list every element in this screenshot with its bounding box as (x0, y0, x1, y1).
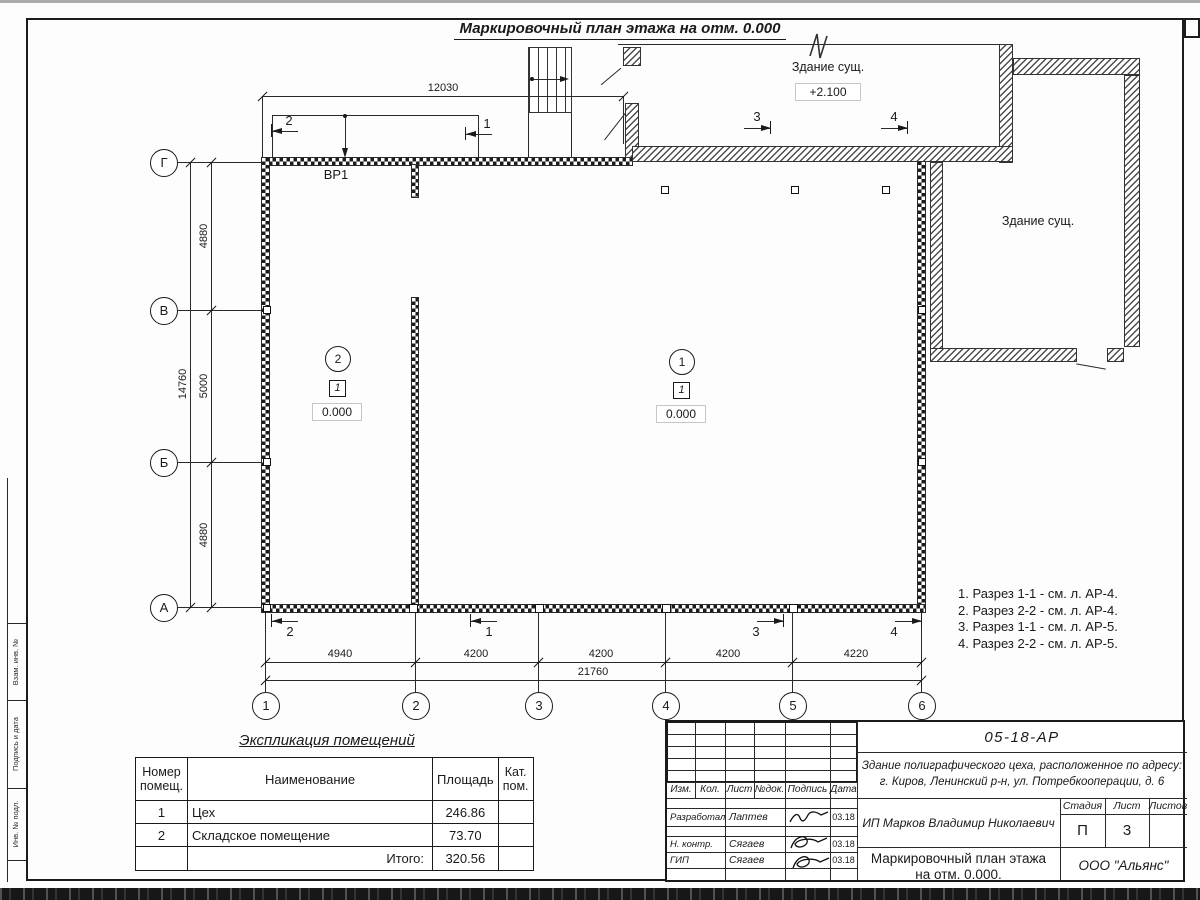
side-stamp-label: Инв. № подл. (11, 786, 23, 862)
column-mark (535, 604, 544, 613)
dim-line-top (262, 96, 623, 97)
column-mark (791, 186, 799, 194)
side-stamp-line (7, 478, 8, 882)
existing-wall (930, 348, 1077, 362)
section-mark-2b-label: 2 (280, 624, 300, 639)
dim-ext-line (623, 96, 624, 144)
expl-header-number: Номер помещ. (136, 758, 188, 801)
dim-ext-line (262, 96, 263, 157)
column-mark (409, 604, 418, 613)
axis-bubble-letter: Б (150, 449, 178, 477)
section-mark-1b-arrow (471, 618, 481, 624)
tb-name: Лаптев (729, 811, 768, 823)
tb-doc-code: 05-18-АР (857, 729, 1187, 746)
expl-row: 2 Складское помещение 73.70 (136, 824, 534, 847)
section-mark-2b-tick (271, 614, 272, 627)
section-mark-4b-label: 4 (884, 624, 904, 639)
section-mark-3-tick (770, 121, 771, 134)
section-mark-3b-tick (783, 614, 784, 627)
section-mark-2-arrow (272, 128, 282, 134)
signature (785, 830, 833, 878)
tb-stage-value: П (1060, 822, 1105, 839)
room-type-mark: 1 (673, 382, 690, 399)
section-notes: 1. Разрез 1-1 - см. л. АР-4. 2. Разрез 2… (958, 586, 1193, 652)
drawing-sheet: Взам. инв. № Подпись и дата Инв. № подл.… (0, 0, 1200, 900)
column-mark (882, 186, 890, 194)
axis-bubble-letter: Г (150, 149, 178, 177)
tb-date: 03.18 (830, 839, 857, 849)
tb-col-list: Лист (725, 784, 754, 795)
column-mark (661, 186, 669, 194)
tb-date: 03.18 (830, 812, 857, 822)
room-number-bubble: 1 (669, 349, 695, 375)
page-title: Маркировочный план этажа на отм. 0.000 (420, 20, 820, 37)
dim-value-bottom: 4200 (688, 648, 768, 660)
column-mark (263, 604, 271, 612)
expl-cell-cat (498, 824, 533, 847)
expl-header-cat: Кат. пом. (498, 758, 533, 801)
expl-total-row: Итого: 320.56 (136, 847, 534, 871)
dim-value-left: 4880 (198, 505, 212, 565)
expl-cell-empty (136, 847, 188, 871)
column-mark (918, 306, 926, 314)
dim-value-top: 12030 (405, 82, 481, 94)
title-block: Изм. Кол. Лист №док. Подпись Дата Разраб… (665, 720, 1185, 882)
side-stamp-label: Подпись и дата (11, 706, 23, 782)
expl-cell-name: Цех (188, 801, 433, 824)
existing-shared-wall (632, 146, 1013, 162)
side-stamp-divider (7, 700, 26, 701)
axis-bubble-letter: А (150, 594, 178, 622)
tb-col-izm: Изм. (667, 784, 695, 795)
dim-value-left-total: 14760 (177, 354, 191, 414)
expl-cell-num: 1 (136, 801, 188, 824)
room-number-bubble: 2 (325, 346, 351, 372)
axis-bubble-letter: В (150, 297, 178, 325)
annex-arrow-dot (343, 114, 347, 118)
tb-name: Сягаев (729, 854, 764, 866)
stair-side-line (571, 113, 572, 158)
expl-header-area: Площадь (433, 758, 499, 801)
section-mark-1b-label: 1 (479, 624, 499, 639)
existing-wall (1013, 58, 1140, 75)
column-mark (789, 604, 798, 613)
axis-bubble-number: 1 (252, 692, 280, 720)
section-mark-3b-label: 3 (746, 624, 766, 639)
dim-value-bottom: 4940 (300, 648, 380, 660)
tb-col-data: Дата (830, 784, 857, 795)
tb-drawing-title: Маркировочный план этажа на отм. 0.000. (857, 851, 1060, 883)
note-line: 1. Разрез 1-1 - см. л. АР-4. (958, 586, 1193, 603)
dim-value-bottom-total: 21760 (553, 666, 633, 678)
partition-stub (412, 165, 418, 197)
explication-title: Экспликация помещений (167, 732, 487, 749)
axis-bubble-number: 5 (779, 692, 807, 720)
tb-col-kol: Кол. (695, 784, 725, 795)
section-mark-1-label: 1 (477, 116, 497, 131)
existing-right-label: Здание сущ. (968, 214, 1108, 228)
dim-value-left: 5000 (198, 356, 212, 416)
section-mark-1-arrow (466, 131, 476, 137)
existing-wall (930, 162, 943, 362)
expl-cell-cat (498, 801, 533, 824)
section-mark-1-tick (465, 127, 466, 140)
signature (787, 806, 831, 828)
expl-cell-empty (498, 847, 533, 871)
annex-left-line (272, 115, 273, 158)
tb-col-podpis: Подпись (785, 784, 830, 795)
section-mark-2-tick (271, 124, 272, 137)
wall-right (918, 158, 925, 612)
expl-total-value: 320.56 (433, 847, 499, 871)
expl-cell-area: 246.86 (433, 801, 499, 824)
tb-list-col: Лист (1105, 800, 1149, 812)
section-mark-2-label: 2 (279, 113, 299, 128)
axis-bubble-number: 6 (908, 692, 936, 720)
room-elevation: 0.000 (312, 403, 362, 421)
wall-bottom (262, 605, 925, 612)
expl-total-label: Итого: (188, 847, 433, 871)
existing-top-elevation: +2.100 (795, 83, 861, 101)
dim-value-bottom: 4220 (816, 648, 896, 660)
existing-top-label: Здание сущ. (758, 60, 898, 74)
dim-line-bottom-total (265, 680, 921, 681)
axis-bubble-number: 2 (402, 692, 430, 720)
frame-corner-box (1184, 18, 1200, 38)
tb-stage-col: Стадия (1060, 800, 1105, 812)
axis-bubble-number: 3 (525, 692, 553, 720)
column-mark (263, 306, 271, 314)
section-mark-1b-tick (470, 614, 471, 627)
tb-address: Здание полиграфического цеха, расположен… (859, 758, 1185, 790)
expl-cell-name: Складское помещение (188, 824, 433, 847)
break-symbol (806, 30, 832, 60)
dim-value-bottom: 4200 (436, 648, 516, 660)
wall-top (262, 158, 632, 165)
scan-edge-bottom (0, 888, 1200, 900)
note-line: 4. Разрез 2-2 - см. л. АР-5. (958, 636, 1193, 653)
section-mark-2b-arrow (272, 618, 282, 624)
tb-name: Сягаев (729, 838, 764, 850)
tb-date: 03.18 (830, 855, 857, 865)
tb-role: ГИП (670, 855, 689, 866)
existing-wall (623, 47, 641, 66)
tb-client: ИП Марков Владимир Николаевич (857, 816, 1060, 830)
annex-arrow-line (345, 118, 346, 152)
dim-line-bottom-seg (265, 662, 921, 663)
expl-cell-num: 2 (136, 824, 188, 847)
note-line: 2. Разрез 2-2 - см. л. АР-4. (958, 603, 1193, 620)
expl-row: 1 Цех 246.86 (136, 801, 534, 824)
existing-wall (1124, 75, 1140, 347)
dim-value-bottom: 4200 (561, 648, 641, 660)
expl-header-name: Наименование (188, 758, 433, 801)
room-elevation: 0.000 (656, 405, 706, 423)
tb-listov-col: Листов (1149, 800, 1187, 812)
section-mark-3-label: 3 (747, 109, 767, 124)
column-mark (918, 458, 926, 466)
tb-role: Н. контр. (670, 839, 713, 850)
column-mark (263, 458, 271, 466)
axis-bubble-number: 4 (652, 692, 680, 720)
room-type-mark: 1 (329, 380, 346, 397)
stair-arrow-head (560, 76, 569, 82)
existing-wall (1107, 348, 1124, 362)
scan-edge-top (0, 0, 1200, 3)
annex-arrow-head (342, 148, 348, 158)
side-stamp-label: Взам. инв. № (11, 624, 23, 700)
expl-cell-area: 73.70 (433, 824, 499, 847)
tb-role: Разработал (670, 812, 725, 823)
tb-sheet-value: 3 (1105, 822, 1149, 839)
column-mark (662, 604, 671, 613)
tb-col-ndok: №док. (754, 784, 785, 795)
section-mark-4b-tick (921, 614, 922, 627)
dim-value-left: 4880 (198, 206, 212, 266)
tb-org: ООО "Альянс" (1060, 858, 1187, 873)
stair-side-line (528, 113, 529, 158)
wall-left (262, 158, 269, 612)
partition-wall (412, 298, 418, 605)
note-line: 3. Разрез 1-1 - см. л. АР-5. (958, 619, 1193, 636)
annex-top-line (272, 115, 478, 116)
section-mark-4-tick (907, 121, 908, 134)
stair-arrow-dot (530, 77, 534, 81)
section-mark-4-label: 4 (884, 109, 904, 124)
explication-table: Номер помещ. Наименование Площадь Кат. п… (135, 757, 534, 871)
vr1-label: ВР1 (312, 167, 360, 182)
